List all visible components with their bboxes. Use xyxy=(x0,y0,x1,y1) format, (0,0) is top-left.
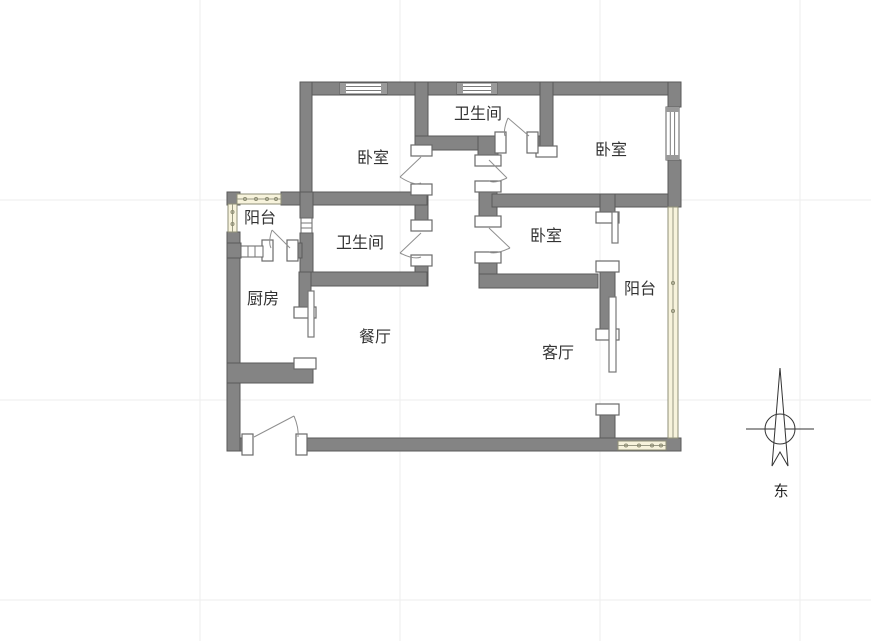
door-jamb xyxy=(411,220,432,231)
door-jamb xyxy=(475,252,501,263)
room-label-kitchen: 厨房 xyxy=(247,289,279,308)
window-top-bathroom xyxy=(457,83,497,94)
room-label-bedroom-top-left: 卧室 xyxy=(357,148,389,167)
door-jamb xyxy=(296,434,307,455)
door-bathroom-middle xyxy=(400,233,421,258)
sliding-panel-balcony-lower xyxy=(609,297,616,372)
door-jamb xyxy=(475,155,501,166)
room-label-bathroom-middle: 卫生间 xyxy=(336,233,384,252)
wall-segment-left xyxy=(227,232,240,451)
door-jamb xyxy=(475,181,501,192)
door-jamb xyxy=(411,145,432,156)
wall-segment xyxy=(300,192,313,218)
door-jamb xyxy=(536,146,557,157)
door-jamb xyxy=(262,240,273,261)
room-label-dining: 餐厅 xyxy=(359,327,391,346)
compass-direction-label: 东 xyxy=(773,482,788,500)
door-jamb xyxy=(596,404,619,415)
wall-segment xyxy=(492,194,668,207)
compass: 东 xyxy=(746,368,814,500)
window-balcony-right-side xyxy=(668,207,678,438)
window-balcony-right-bottom xyxy=(618,441,666,450)
room-label-living: 客厅 xyxy=(542,343,574,362)
compass-needle-icon xyxy=(772,368,788,466)
wall-segment xyxy=(600,194,615,213)
room-label-balcony-left: 阳台 xyxy=(244,208,276,227)
window-balcony-left-top xyxy=(237,194,281,204)
floor-plan-canvas: 卧室 卫生间 卧室 阳台 卫生间 卧室 厨房 餐厅 客厅 阳台 东 xyxy=(0,0,871,641)
wall-segment xyxy=(300,82,312,205)
door-jamb xyxy=(287,240,298,261)
wall-segment-right-upper xyxy=(668,82,681,107)
window-balcony-left-side xyxy=(228,204,237,232)
door-jamb xyxy=(596,261,619,272)
window-top-bedroom1 xyxy=(340,83,387,94)
room-label-bathroom-top: 卫生间 xyxy=(454,104,502,123)
door-bathroom-top xyxy=(504,118,529,136)
wall-segment xyxy=(479,274,598,288)
sliding-panel-balcony-upper xyxy=(612,212,618,243)
door-bedroom-middle xyxy=(489,228,510,253)
door-entrance xyxy=(254,416,298,437)
grid-lines xyxy=(0,0,871,641)
window-right-bedroom2 xyxy=(666,107,679,160)
wall-segment-right-upper xyxy=(668,160,681,207)
wall-segment xyxy=(540,82,553,150)
sliding-panel-kitchen xyxy=(308,291,314,337)
wall-segment xyxy=(227,243,241,258)
wall-segment xyxy=(302,272,427,286)
door-jamb xyxy=(475,216,501,227)
window-bathroom-middle-side xyxy=(301,218,312,233)
room-label-bedroom-top-right: 卧室 xyxy=(595,140,627,159)
door-jamb xyxy=(411,255,432,266)
door-jamb xyxy=(294,358,316,369)
door-jamb xyxy=(242,434,253,455)
window-balcony-kitchen-divider xyxy=(241,246,263,257)
door-bedroom-top-left xyxy=(400,157,421,184)
room-label-balcony-right: 阳台 xyxy=(624,279,656,298)
door-jamb xyxy=(411,184,432,195)
floor-plan-svg: 卧室 卫生间 卧室 阳台 卫生间 卧室 厨房 餐厅 客厅 阳台 东 xyxy=(0,0,871,641)
room-label-bedroom-middle: 卧室 xyxy=(530,226,562,245)
wall-segment xyxy=(600,415,615,438)
